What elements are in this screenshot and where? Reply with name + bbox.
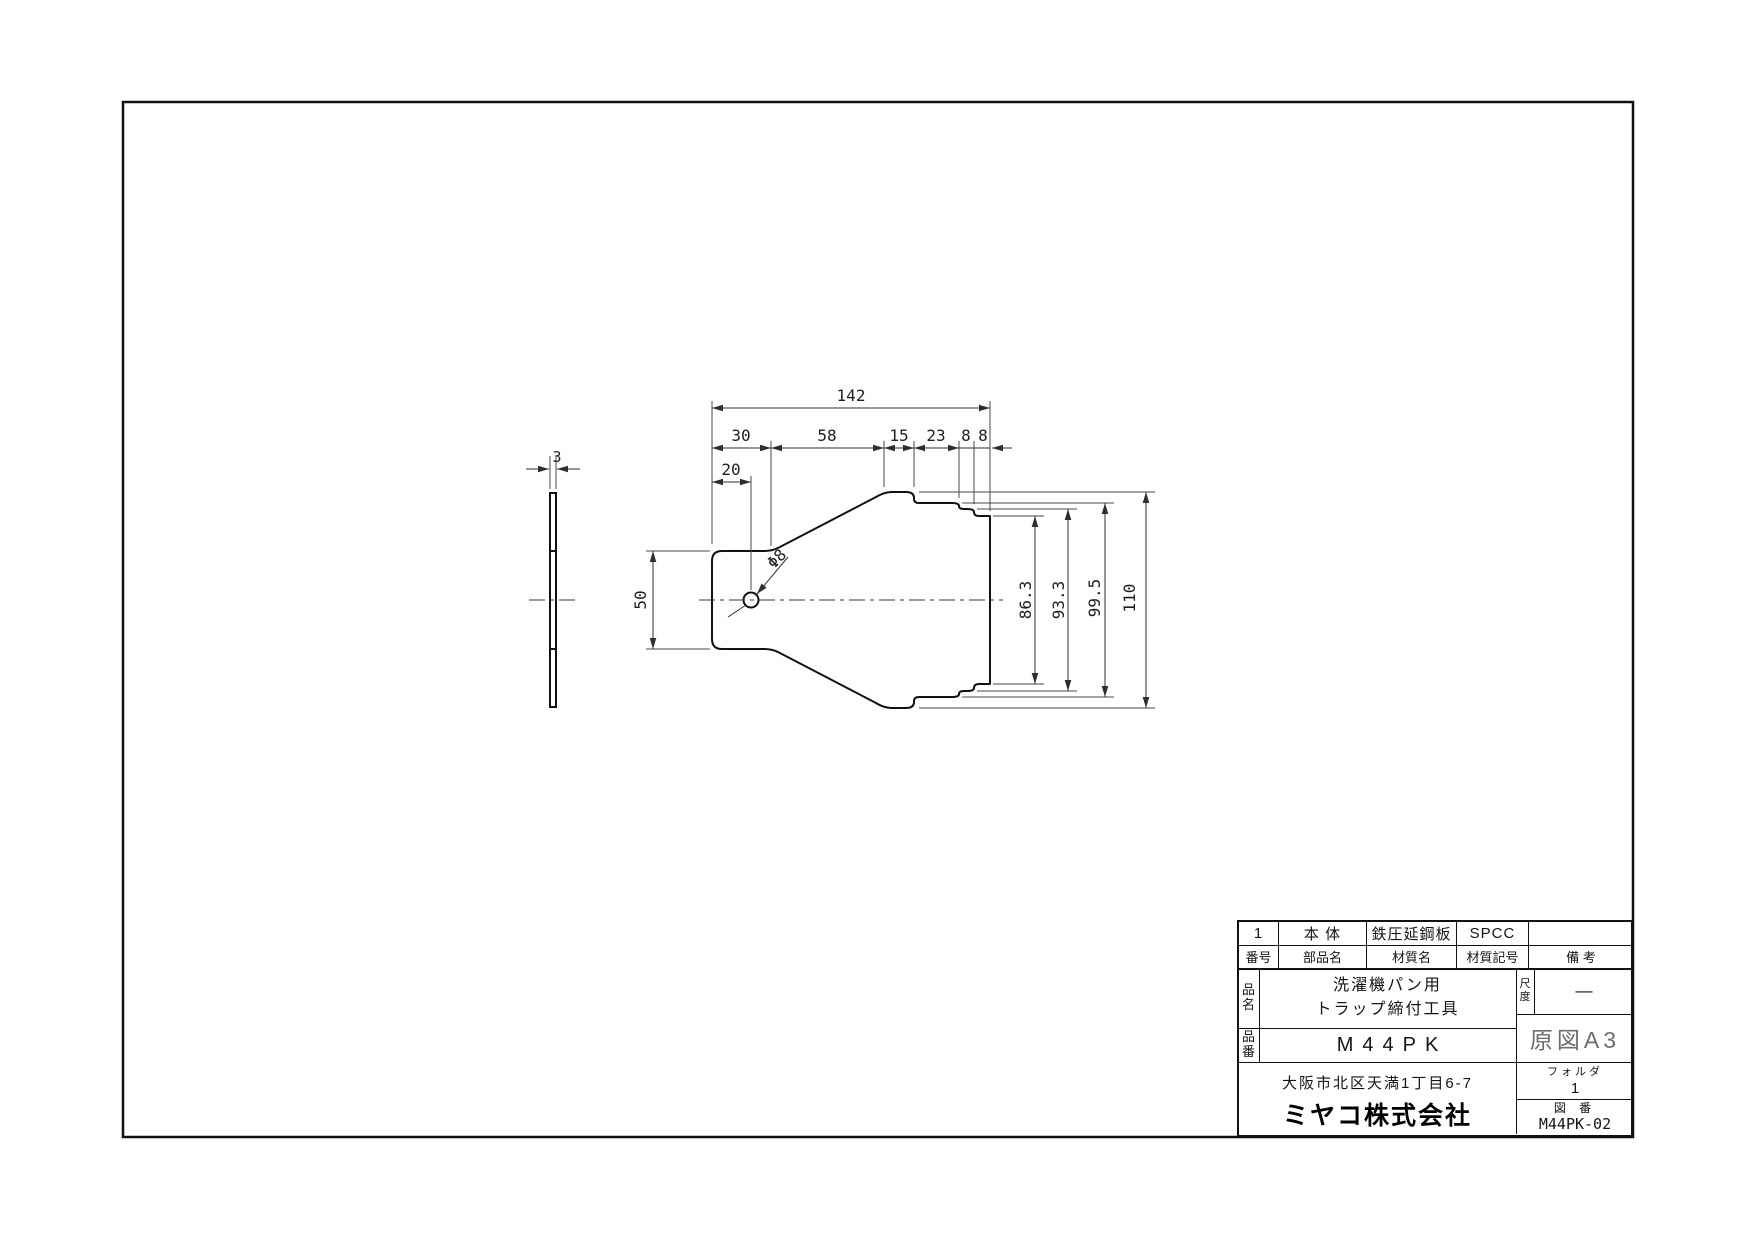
- dim-hole-offset: 20: [721, 460, 740, 479]
- company-name: ミヤコ株式会社: [1239, 1094, 1516, 1134]
- product-code-label: 品番: [1239, 1029, 1258, 1061]
- product-code: M44PK: [1260, 1029, 1515, 1061]
- dim-thickness: 3: [552, 448, 561, 466]
- drawing-number-value: M44PK-02: [1517, 1114, 1633, 1134]
- header-part-name: 部品名: [1279, 945, 1366, 968]
- extension-lines: [550, 401, 1155, 708]
- remarks-cell: [1529, 922, 1633, 945]
- drawing-number-label: 図 番: [1517, 1100, 1633, 1114]
- title-block: 1 本 体 鉄圧延鋼板 SPCC 番号 部品名 材質名 材質記号 備 考 品名 …: [1237, 920, 1633, 1137]
- header-material-name: 材質名: [1367, 945, 1456, 968]
- dim-height-99: 99.5: [1085, 579, 1104, 618]
- scale-label: 尺度: [1517, 969, 1533, 1013]
- folder-value: 1: [1517, 1078, 1633, 1098]
- dimension-lines: [526, 408, 1146, 708]
- dim-seg-8b: 8: [978, 426, 988, 445]
- header-part-number: 番号: [1239, 945, 1278, 968]
- company-address: 大阪市北区天満1丁目6-7: [1239, 1067, 1516, 1097]
- product-name-line1: 洗濯機パン用: [1333, 974, 1442, 998]
- dim-hole-diameter: Φ8: [763, 545, 790, 572]
- dim-height-86: 86.3: [1016, 581, 1035, 620]
- folder-label: フォルダ: [1517, 1063, 1633, 1078]
- header-material-code: 材質記号: [1457, 945, 1528, 968]
- dim-seg-30: 30: [731, 426, 750, 445]
- header-remarks: 備 考: [1529, 945, 1633, 968]
- material-code-cell: SPCC: [1457, 922, 1528, 945]
- product-name: 洗濯機パン用 トラップ締付工具: [1260, 969, 1515, 1027]
- product-name-label: 品名: [1239, 969, 1258, 1027]
- part-name-cell: 本 体: [1279, 922, 1366, 945]
- dim-handle-height: 50: [631, 590, 650, 609]
- part-number-cell: 1: [1239, 922, 1278, 945]
- dim-height-93: 93.3: [1049, 581, 1068, 620]
- product-name-line2: トラップ締付工具: [1315, 998, 1459, 1022]
- dim-overall-width: 142: [837, 386, 866, 405]
- paper-size: 原図A3: [1517, 1015, 1633, 1061]
- scale-value: —: [1535, 969, 1633, 1013]
- dim-seg-58: 58: [817, 426, 836, 445]
- dim-seg-15: 15: [889, 426, 908, 445]
- dim-seg-23: 23: [926, 426, 945, 445]
- dim-seg-8a: 8: [961, 426, 971, 445]
- material-name-cell: 鉄圧延鋼板: [1367, 922, 1456, 945]
- dim-height-110: 110: [1120, 584, 1139, 613]
